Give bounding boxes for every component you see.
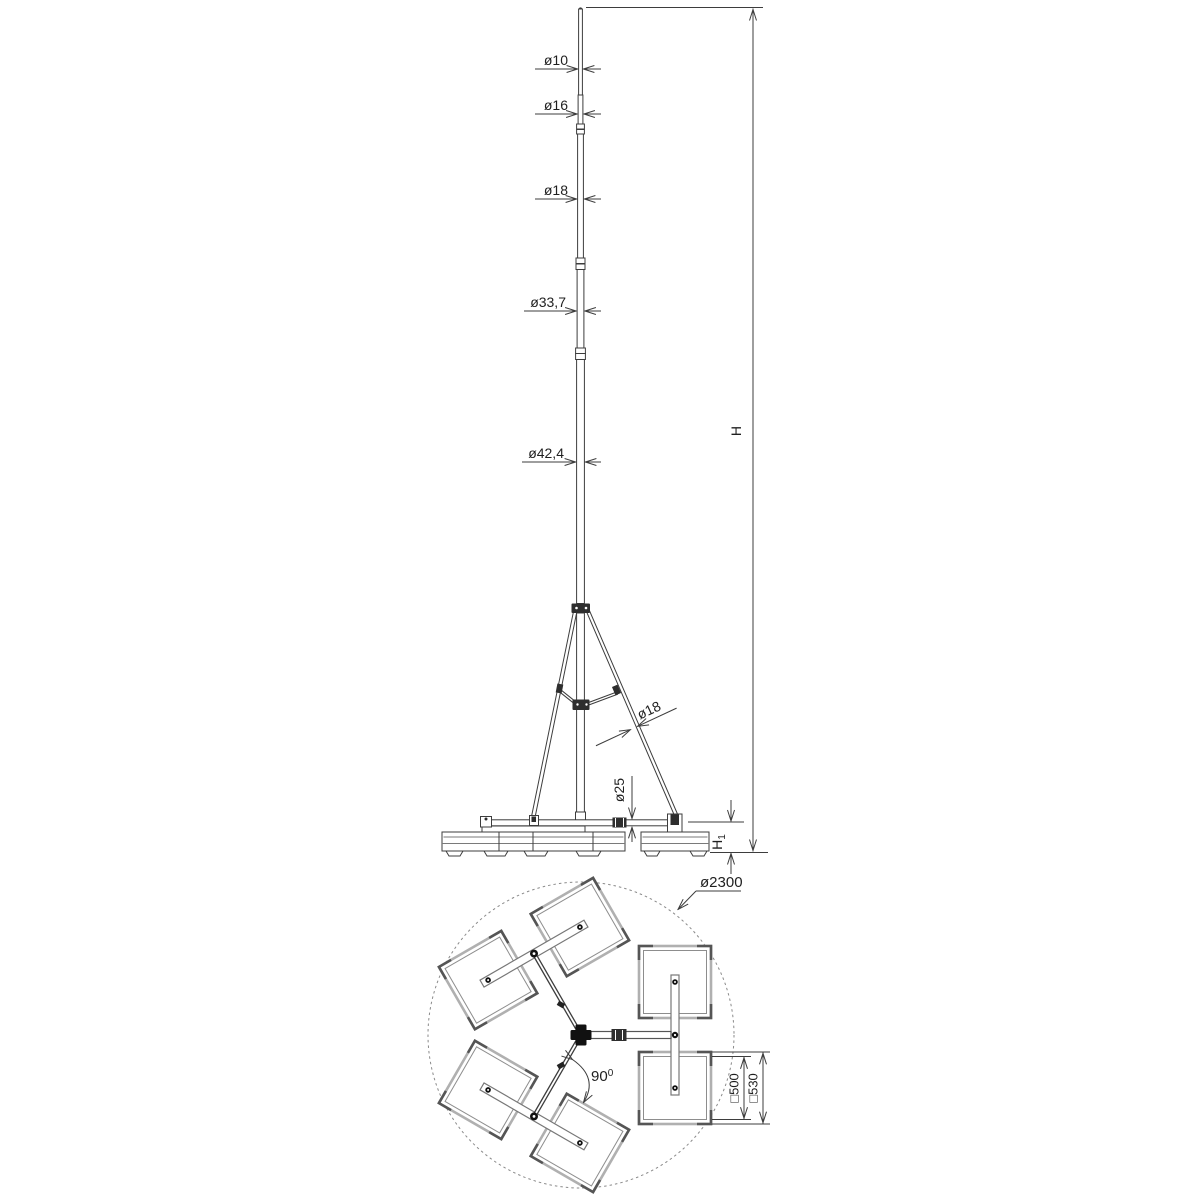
mast-joint <box>577 124 585 129</box>
mast-joint <box>576 258 585 264</box>
mast-joint <box>576 348 586 354</box>
mast-technical-drawing: H H1 <box>0 0 1200 1200</box>
dim-diameter-10: ø10 <box>535 52 601 69</box>
base-arm-tube <box>483 820 677 826</box>
mast-lower-section <box>577 613 585 821</box>
telescopic-mast <box>576 7 586 821</box>
plan-view: 900 ø2300 □500 □530 <box>428 874 770 1192</box>
ballast-slab-centre <box>442 832 625 856</box>
height-label: H <box>728 426 744 436</box>
diameter-10-label: ø10 <box>544 52 568 68</box>
arm-angle-label: 900 <box>591 1068 614 1085</box>
hub <box>571 1025 592 1046</box>
arm-diameter-label: ø25 <box>611 778 627 802</box>
dim-overall-height: H <box>586 8 768 853</box>
mast-section-o16 <box>578 95 583 124</box>
mast-section-o33 <box>577 270 584 349</box>
plate-outer-label: □530 <box>746 1073 761 1103</box>
ballast-base-elevation <box>442 814 709 856</box>
mast-section-o10 <box>579 9 583 95</box>
arm-coupling <box>613 818 627 828</box>
tripod-brace <box>556 684 621 710</box>
diameter-33-7-label: ø33,7 <box>530 294 566 310</box>
dim-diameter-33-7: ø33,7 <box>524 294 601 311</box>
footprint-diameter-label: ø2300 <box>700 874 743 891</box>
technical-drawing-page: H H1 <box>0 0 1200 1200</box>
right-arm-tube <box>585 1032 671 1039</box>
dim-footprint-diameter: ø2300 <box>678 874 743 910</box>
dim-diameter-18: ø18 <box>535 182 601 199</box>
dim-diameter-42-4: ø42,4 <box>522 445 601 462</box>
mast-section-o18 <box>578 134 584 258</box>
tripod-leg-left <box>531 610 577 820</box>
mast-joint <box>576 264 585 270</box>
dim-diameter-16: ø16 <box>535 97 601 114</box>
mast-joint <box>577 130 585 135</box>
arm-coupling-plan <box>612 1029 627 1041</box>
diameter-16-label: ø16 <box>544 97 568 113</box>
diameter-42-4-label: ø42,4 <box>528 445 564 461</box>
diameter-18-label: ø18 <box>544 182 568 198</box>
ballast-slab-right <box>641 832 709 856</box>
dim-arm-angle: 900 <box>573 1060 614 1103</box>
leg-diameter-label: ø18 <box>635 698 664 723</box>
elevation-view: H H1 <box>442 7 768 874</box>
plate-inner-label: □500 <box>727 1073 742 1103</box>
mast-joint <box>576 354 586 360</box>
base-height-label: H1 <box>709 834 728 850</box>
mast-section-o42 <box>577 360 585 604</box>
